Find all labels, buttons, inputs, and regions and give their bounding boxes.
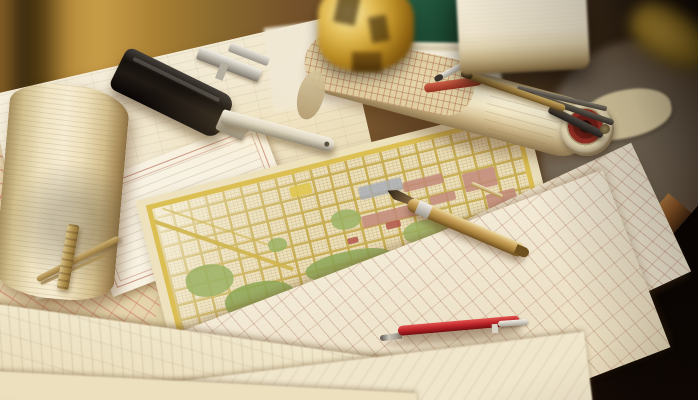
brass-square-tool (36, 222, 132, 302)
pen-clip (498, 319, 528, 327)
map-park-area (329, 206, 363, 233)
pen-clip (471, 182, 504, 199)
thick-book (456, 0, 590, 75)
brass-bar (36, 235, 121, 282)
photo-architects-desk (0, 0, 698, 400)
light-glow (60, 70, 460, 190)
red-ballpoint-pen (376, 312, 538, 348)
brass-instrument (318, 0, 414, 70)
map-landmark-dot (347, 236, 359, 244)
map-park-area (267, 236, 288, 253)
divider-hinge (600, 124, 610, 134)
instrument-stem (352, 52, 382, 72)
fountain-pen (382, 182, 552, 266)
pen-body (405, 197, 526, 259)
